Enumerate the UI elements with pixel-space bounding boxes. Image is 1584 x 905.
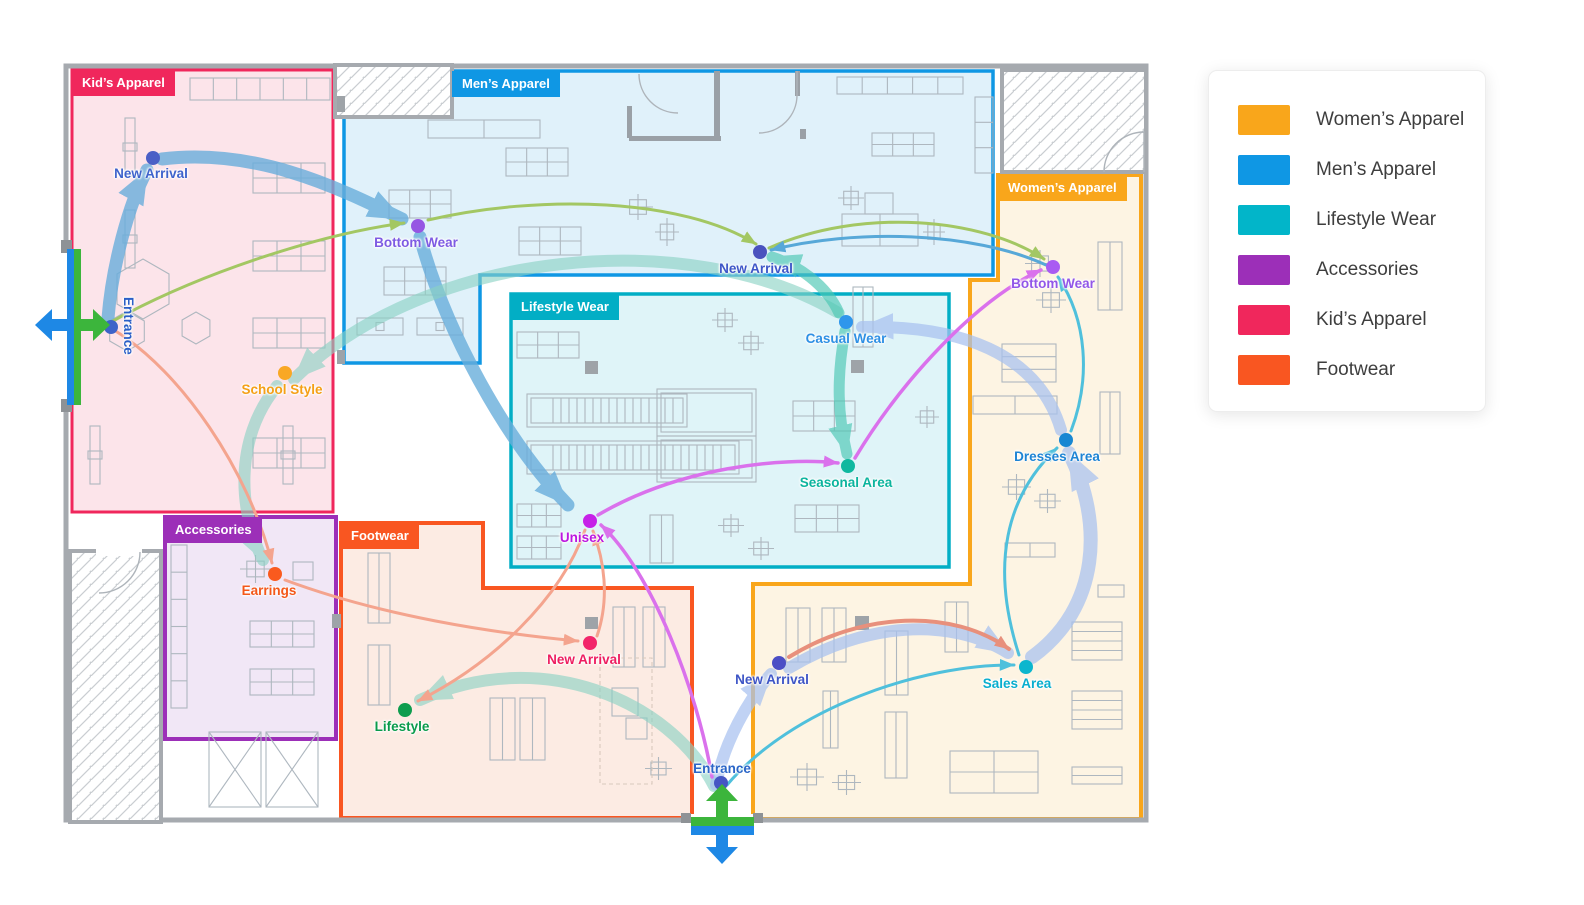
door-jamb — [753, 813, 763, 823]
legend-item-lifestyle: Lifestyle Wear — [1209, 195, 1485, 245]
legend-item-accessories: Accessories — [1209, 245, 1485, 295]
station-dot-lifestyle — [398, 703, 412, 717]
station-label-new-arrival-kids: New Arrival — [114, 166, 188, 181]
station-dot-casual-wear — [839, 315, 853, 329]
hatched-area-2 — [70, 551, 161, 822]
legend-label-mens: Men’s Apparel — [1316, 159, 1436, 181]
region-tab-womens: Women’s Apparel — [998, 175, 1127, 201]
legend-item-footwear: Footwear — [1209, 345, 1485, 395]
store-floorplan-canvas: Kid’s ApparelMen’s ApparelLifestyle Wear… — [0, 0, 1584, 905]
station-label-entrance-left: Entrance — [121, 297, 136, 355]
legend-item-womens: Women’s Apparel — [1209, 95, 1485, 145]
legend-label-kids: Kid’s Apparel — [1316, 309, 1427, 331]
legend-swatch-footwear — [1238, 355, 1290, 385]
station-dot-new-arrival-womens — [772, 656, 786, 670]
hatched-area-0 — [335, 65, 452, 117]
door-jamb — [681, 813, 691, 823]
legend-swatch-accessories — [1238, 255, 1290, 285]
region-tab-mens: Men’s Apparel — [452, 71, 560, 97]
legend-label-footwear: Footwear — [1316, 359, 1395, 381]
region-tab-accessories: Accessories — [165, 517, 262, 543]
wall-opening — [96, 546, 142, 556]
station-label-entrance-bottom: Entrance — [693, 761, 751, 776]
structural-column — [337, 96, 345, 112]
station-dot-new-arrival-footwear — [583, 636, 597, 650]
legend-label-lifestyle: Lifestyle Wear — [1316, 209, 1436, 231]
legend-swatch-womens — [1238, 105, 1290, 135]
station-dot-new-arrival-mens — [753, 245, 767, 259]
interior-wall — [627, 106, 632, 138]
legend-item-kids: Kid’s Apparel — [1209, 295, 1485, 345]
station-dot-new-arrival-kids — [146, 151, 160, 165]
legend-swatch-kids — [1238, 305, 1290, 335]
region-tab-footwear: Footwear — [341, 523, 419, 549]
interior-wall — [714, 71, 720, 139]
station-label-dresses-area: Dresses Area — [1014, 449, 1100, 464]
station-label-bottom-wear-womens: Bottom Wear — [1011, 276, 1095, 291]
station-label-new-arrival-womens: New Arrival — [735, 672, 809, 687]
station-label-new-arrival-mens: New Arrival — [719, 261, 793, 276]
station-dot-dresses-area — [1059, 433, 1073, 447]
region-tab-lifestyle: Lifestyle Wear — [511, 294, 619, 320]
hatched-area-1 — [1002, 70, 1146, 172]
entrance-bottom-bar — [691, 817, 754, 826]
station-label-new-arrival-footwear: New Arrival — [547, 652, 621, 667]
legend-label-womens: Women’s Apparel — [1316, 109, 1464, 131]
station-dot-unisex — [583, 514, 597, 528]
station-dot-bottom-wear-mens — [411, 219, 425, 233]
station-dot-sales-area — [1019, 660, 1033, 674]
structural-column — [585, 361, 598, 374]
station-dot-seasonal-area — [841, 459, 855, 473]
legend-item-mens: Men’s Apparel — [1209, 145, 1485, 195]
entrance-left-bar — [74, 249, 81, 405]
station-dot-school-style — [278, 366, 292, 380]
station-dot-bottom-wear-womens — [1046, 260, 1060, 274]
entrance-bottom-bar — [691, 826, 754, 835]
station-label-casual-wear: Casual Wear — [806, 331, 887, 346]
station-label-seasonal-area: Seasonal Area — [800, 475, 893, 490]
entrance-bottom-exit-arrow — [706, 835, 738, 864]
structural-column — [851, 360, 864, 373]
entrance-left-bar — [67, 249, 74, 405]
interior-wall — [629, 136, 721, 141]
station-label-bottom-wear-mens: Bottom Wear — [374, 235, 458, 250]
structural-column — [337, 350, 345, 364]
legend-swatch-mens — [1238, 155, 1290, 185]
station-label-lifestyle: Lifestyle — [375, 719, 430, 734]
station-label-sales-area: Sales Area — [983, 676, 1052, 691]
interior-wall — [800, 129, 806, 139]
legend-panel: Women’s ApparelMen’s ApparelLifestyle We… — [1208, 70, 1486, 412]
structural-column — [332, 614, 341, 628]
legend-label-accessories: Accessories — [1316, 259, 1418, 281]
station-label-earrings: Earrings — [242, 583, 297, 598]
station-label-unisex: Unisex — [560, 530, 604, 545]
legend-swatch-lifestyle — [1238, 205, 1290, 235]
station-label-school-style: School Style — [241, 382, 322, 397]
region-tab-kids: Kid’s Apparel — [72, 70, 175, 96]
station-dot-earrings — [268, 567, 282, 581]
structural-column — [585, 617, 598, 629]
